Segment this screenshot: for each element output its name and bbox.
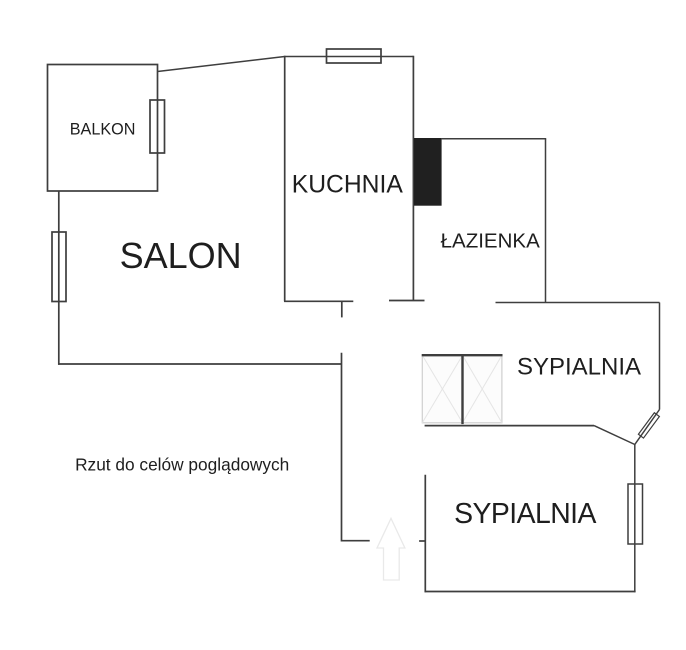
svg-text:BALKON: BALKON: [70, 121, 136, 139]
svg-text:SYPIALNIA: SYPIALNIA: [517, 354, 641, 381]
svg-text:ŁAZIENKA: ŁAZIENKA: [441, 230, 540, 253]
svg-text:Rzut do celów poglądowych: Rzut do celów poglądowych: [75, 454, 289, 474]
svg-text:SYPIALNIA: SYPIALNIA: [454, 498, 596, 530]
svg-text:SALON: SALON: [120, 235, 242, 276]
svg-text:KUCHNIA: KUCHNIA: [292, 172, 404, 199]
